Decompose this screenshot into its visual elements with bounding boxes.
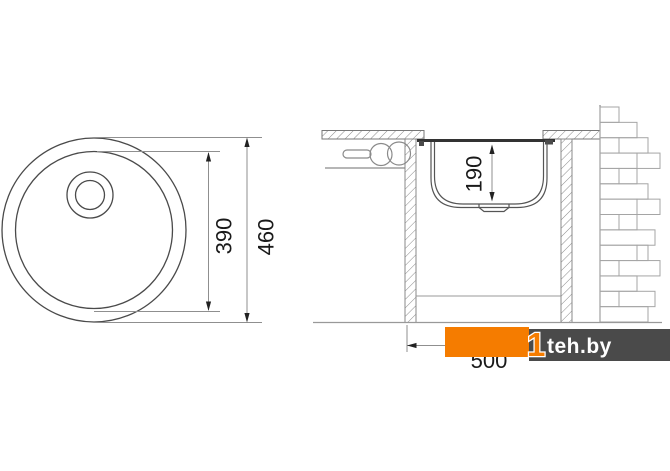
brick bbox=[619, 215, 637, 230]
dim-460-arrow-top bbox=[244, 138, 249, 148]
brick bbox=[619, 168, 637, 183]
drain-outer-circle bbox=[67, 172, 113, 218]
brick bbox=[637, 199, 660, 214]
brick bbox=[600, 184, 648, 199]
brick bbox=[600, 307, 648, 322]
brick-wall bbox=[600, 107, 660, 322]
brick bbox=[600, 153, 637, 168]
dim-460-arrow-bottom bbox=[244, 313, 249, 323]
cabinet-wall-right bbox=[561, 139, 572, 323]
watermark-orange-block bbox=[445, 327, 529, 357]
countertop-left bbox=[322, 131, 424, 140]
dim-190-arrow-bottom bbox=[489, 192, 494, 202]
dimensional-drawing-svg: 390 460 bbox=[0, 0, 670, 471]
rim-clamp-left bbox=[419, 141, 424, 146]
sink-section-view bbox=[313, 105, 662, 323]
brick bbox=[637, 153, 660, 168]
dim-190-arrow-top bbox=[489, 145, 494, 155]
brick bbox=[600, 168, 619, 183]
brick bbox=[600, 107, 619, 122]
dim-500-arrow-left bbox=[407, 343, 417, 348]
sink-top-view bbox=[2, 138, 186, 322]
brick bbox=[600, 276, 637, 291]
drain-inner-circle bbox=[76, 181, 105, 210]
brick bbox=[600, 138, 619, 153]
brick bbox=[600, 215, 619, 230]
brick bbox=[619, 138, 648, 153]
faucet-holes-detail bbox=[325, 142, 411, 168]
dim-390-arrow-bottom bbox=[206, 302, 211, 312]
brick bbox=[600, 122, 637, 137]
dim-390-arrow-top bbox=[206, 152, 211, 162]
brick bbox=[637, 245, 648, 260]
bowl-edge-circle bbox=[16, 152, 173, 309]
dim-390-label: 390 bbox=[212, 218, 237, 255]
bowl-inner-wall bbox=[435, 142, 544, 204]
brick bbox=[600, 230, 655, 245]
brick bbox=[600, 245, 637, 260]
countertop-right bbox=[543, 131, 600, 140]
watermark-one-glyph: 1 bbox=[527, 326, 545, 363]
dim-190-label: 190 bbox=[462, 156, 487, 193]
brick bbox=[619, 261, 660, 276]
brick bbox=[600, 261, 619, 276]
cabinet-wall-left bbox=[405, 139, 416, 323]
handle-pill bbox=[343, 150, 371, 158]
dim-460-label: 460 bbox=[254, 219, 279, 256]
rim-clamp-right bbox=[545, 140, 553, 145]
bowl-outer-wall bbox=[431, 142, 547, 208]
product-dimension-drawing: 390 460 bbox=[0, 0, 670, 471]
outer-rim-circle bbox=[2, 138, 186, 322]
watermark-site-label: teh.by bbox=[547, 335, 612, 358]
brick bbox=[619, 291, 655, 306]
tap-hole-left bbox=[370, 144, 392, 166]
brick bbox=[600, 291, 619, 306]
brick bbox=[600, 199, 637, 214]
